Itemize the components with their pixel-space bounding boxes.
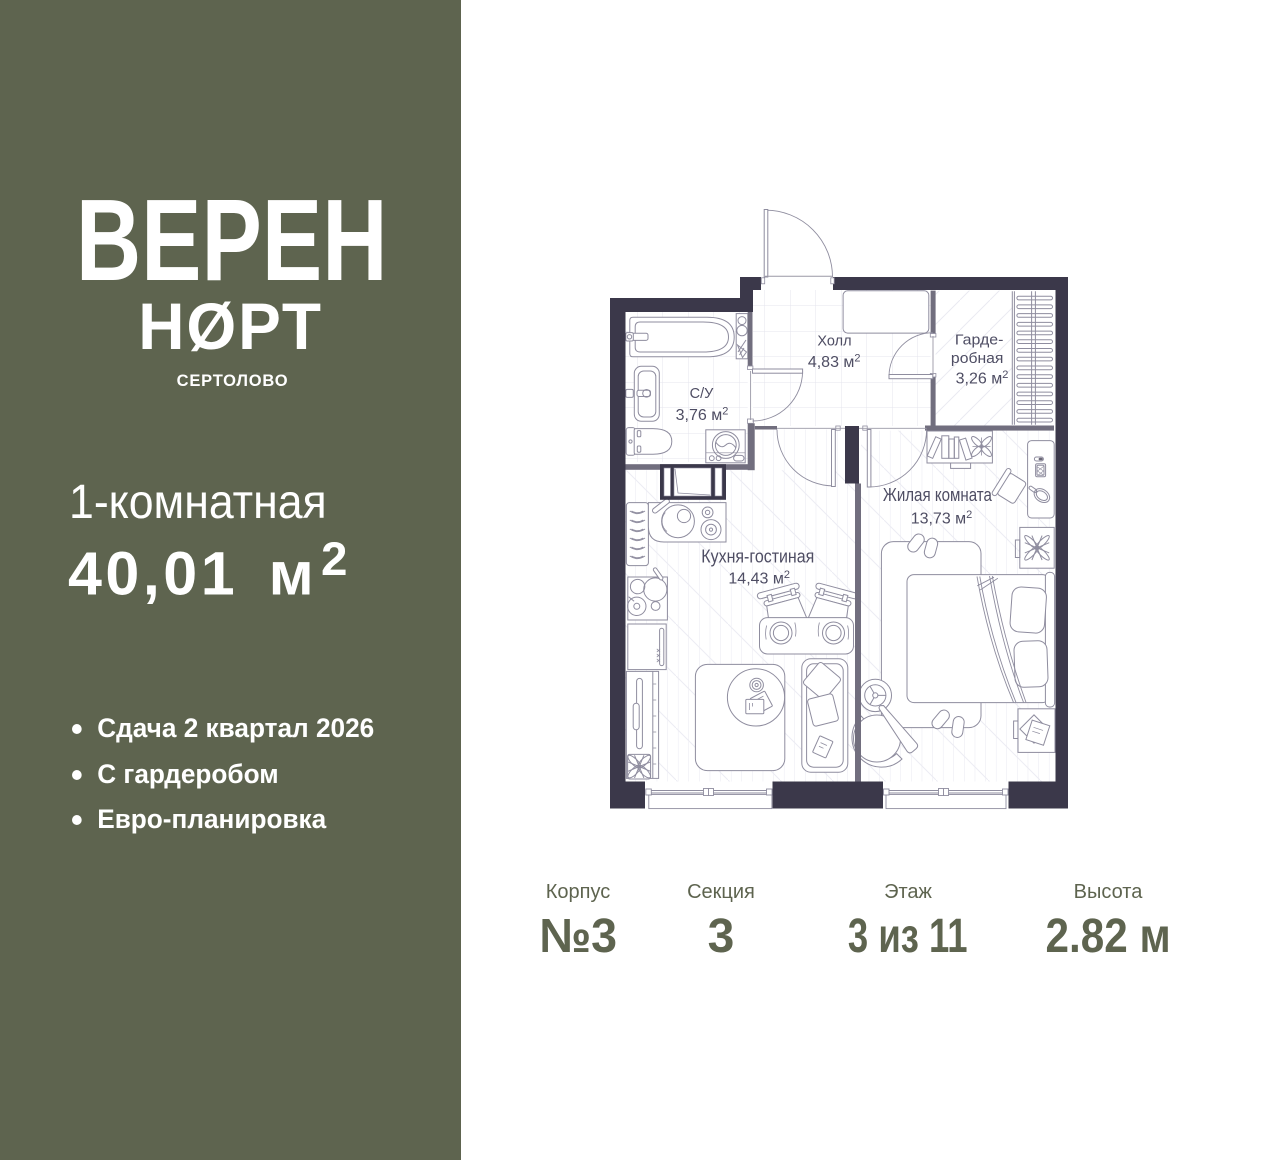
svg-text:Кухня-гостиная: Кухня-гостиная: [701, 547, 814, 567]
svg-text:С/У: С/У: [690, 386, 715, 402]
svg-text:Гарде-: Гарде-: [955, 333, 1004, 349]
svg-text:Холл: Холл: [817, 334, 851, 350]
svg-text:робная: робная: [951, 351, 1004, 367]
svg-text:3,26 м2: 3,26 м2: [956, 369, 1009, 388]
svg-text:Жилая комната: Жилая комната: [883, 485, 993, 505]
svg-text:14,43 м2: 14,43 м2: [728, 569, 790, 588]
svg-text:4,83 м2: 4,83 м2: [808, 353, 861, 372]
svg-text:13,73 м2: 13,73 м2: [911, 509, 973, 528]
svg-text:3,76 м2: 3,76 м2: [676, 406, 729, 425]
